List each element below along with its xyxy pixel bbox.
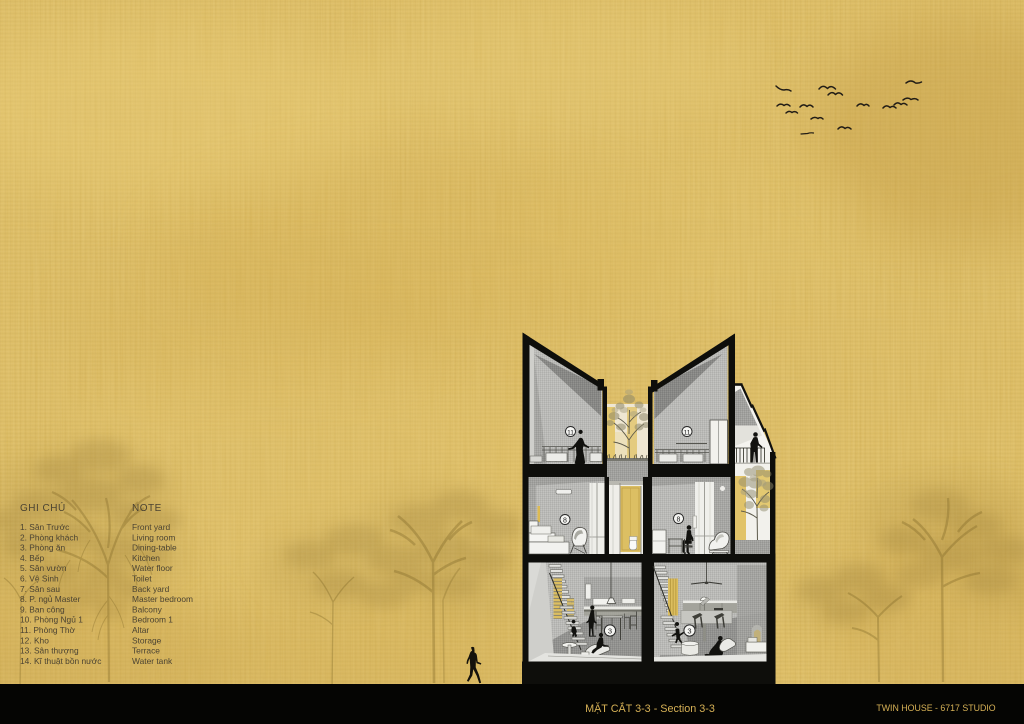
svg-text:Water floor: Water floor: [132, 563, 173, 573]
svg-text:13. Sân thượng: 13. Sân thượng: [20, 646, 79, 656]
svg-text:11. Phòng Thờ: 11. Phòng Thờ: [20, 625, 76, 635]
svg-text:3: 3: [608, 627, 612, 636]
svg-text:11: 11: [684, 429, 691, 436]
svg-text:8. P. ngủ Master: 8. P. ngủ Master: [20, 594, 81, 604]
svg-text:TWIN HOUSE - 6717 STUDIO: TWIN HOUSE - 6717 STUDIO: [876, 703, 995, 713]
svg-text:9. Ban công: 9. Ban công: [20, 604, 65, 614]
svg-text:GHI CHÚ: GHI CHÚ: [20, 501, 66, 514]
svg-text:2. Phòng khách: 2. Phòng khách: [20, 532, 79, 542]
svg-text:6. Vệ Sinh: 6. Vệ Sinh: [20, 574, 59, 584]
svg-text:Dining-table: Dining-table: [132, 543, 177, 553]
svg-text:Balcony: Balcony: [132, 604, 163, 614]
svg-text:Back yard: Back yard: [132, 584, 170, 594]
svg-text:Altar: Altar: [132, 625, 149, 635]
svg-text:11: 11: [567, 429, 574, 436]
svg-text:Bedroom 1: Bedroom 1: [132, 615, 173, 625]
svg-text:14. Kĩ thuật bồn nước: 14. Kĩ thuật bồn nước: [20, 656, 101, 666]
svg-text:3: 3: [687, 627, 691, 636]
svg-text:Kitchen: Kitchen: [132, 553, 160, 563]
svg-text:7. Sân sau: 7. Sân sau: [20, 584, 60, 594]
svg-text:MẶT CẮT 3-3 - Section 3-3: MẶT CẮT 3-3 - Section 3-3: [585, 702, 715, 715]
svg-text:Front yard: Front yard: [132, 522, 171, 532]
svg-text:Living room: Living room: [132, 532, 175, 542]
svg-text:4. Bếp: 4. Bếp: [20, 553, 45, 563]
svg-text:Toilet: Toilet: [132, 574, 152, 584]
svg-text:Water tank: Water tank: [132, 656, 173, 666]
svg-text:Storage: Storage: [132, 635, 162, 645]
svg-text:1. Sân Trước: 1. Sân Trước: [20, 522, 69, 532]
svg-text:8: 8: [563, 517, 567, 524]
svg-text:12. Kho: 12. Kho: [20, 635, 49, 645]
svg-text:Master bedroom: Master bedroom: [132, 594, 193, 604]
svg-text:3. Phòng ăn: 3. Phòng ăn: [20, 543, 66, 553]
svg-text:5. Sân vườn: 5. Sân vườn: [20, 563, 67, 573]
svg-text:Terrace: Terrace: [132, 646, 160, 656]
svg-text:NOTE: NOTE: [132, 503, 162, 514]
svg-text:10. Phòng Ngủ 1: 10. Phòng Ngủ 1: [20, 615, 83, 625]
svg-text:8: 8: [677, 516, 681, 523]
